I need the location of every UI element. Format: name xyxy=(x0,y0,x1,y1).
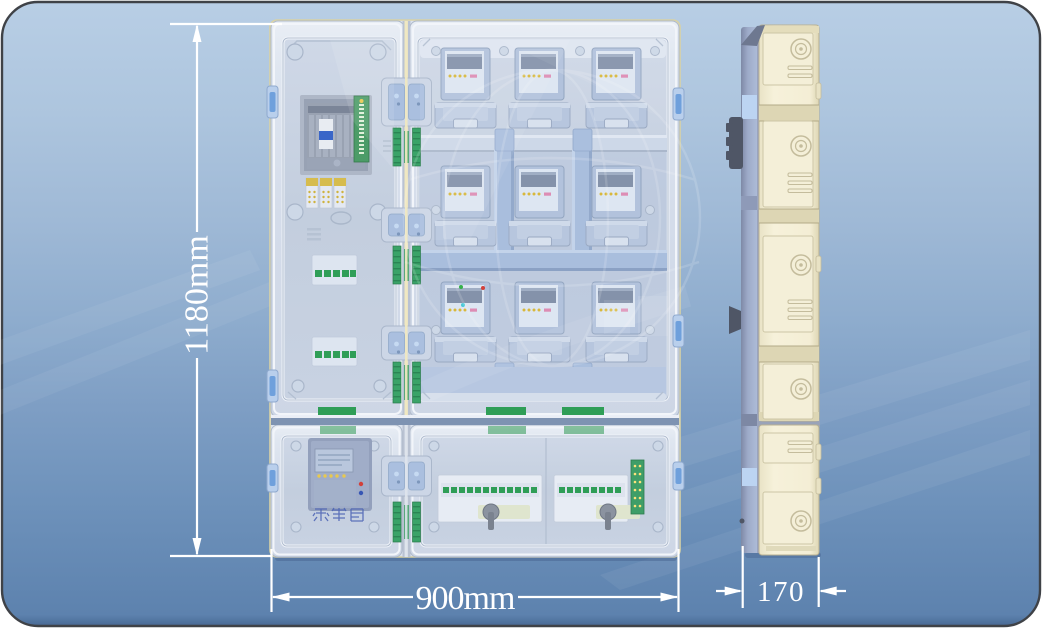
svg-text:170: 170 xyxy=(757,576,805,608)
svg-text:900mm: 900mm xyxy=(416,580,515,617)
svg-text:1180mm: 1180mm xyxy=(179,235,216,355)
